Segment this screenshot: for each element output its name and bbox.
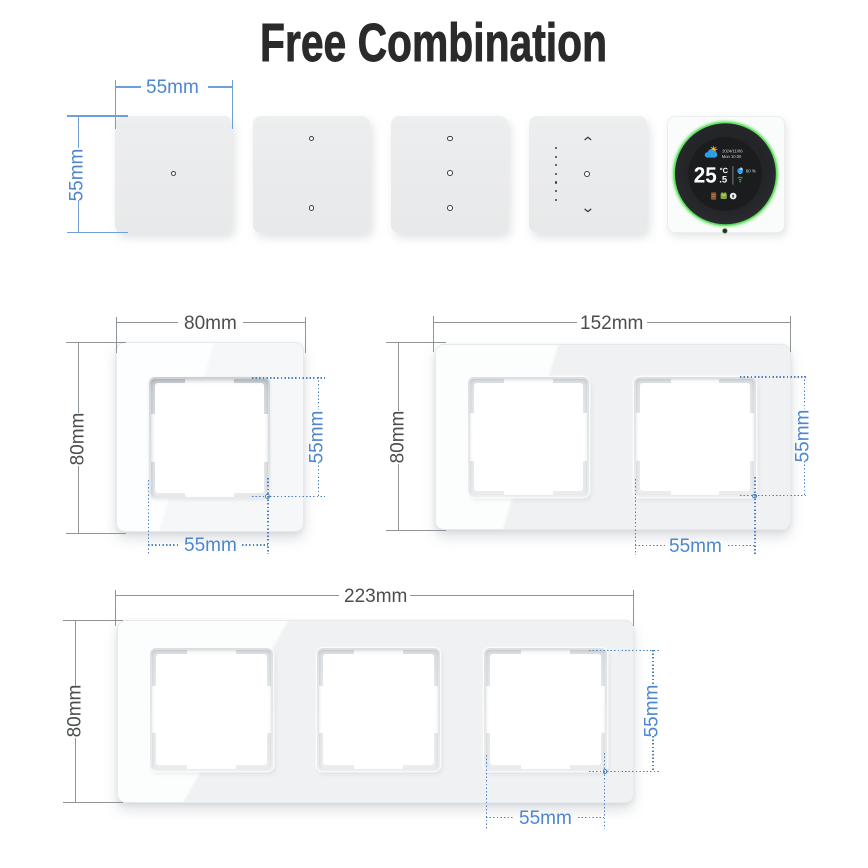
svg-text:.5: .5 xyxy=(720,174,729,185)
svg-text:2024/11/06: 2024/11/06 xyxy=(722,148,743,153)
svg-text:°C: °C xyxy=(720,165,729,174)
svg-text:Mon 10:30: Mon 10:30 xyxy=(722,153,742,158)
svg-text:60 %: 60 % xyxy=(746,168,756,173)
svg-text:25: 25 xyxy=(694,162,717,187)
